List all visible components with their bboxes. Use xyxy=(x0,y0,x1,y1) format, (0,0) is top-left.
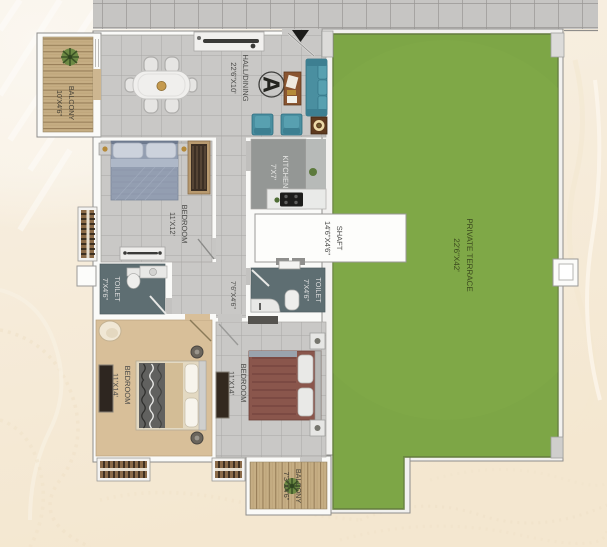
svg-text:10'X4'6": 10'X4'6" xyxy=(55,90,64,117)
svg-text:HALL/DINING: HALL/DINING xyxy=(241,54,250,101)
svg-text:7'6"X4'6": 7'6"X4'6" xyxy=(229,281,236,309)
svg-text:7'3"X4'6": 7'3"X4'6" xyxy=(282,472,291,501)
svg-text:TOILET: TOILET xyxy=(314,277,323,303)
svg-text:BEDROOM: BEDROOM xyxy=(123,366,132,405)
svg-text:22'6"X10': 22'6"X10' xyxy=(229,62,238,94)
svg-text:BALCONY: BALCONY xyxy=(294,469,303,504)
svg-text:BEDROOM: BEDROOM xyxy=(239,364,248,403)
svg-text:7'X7': 7'X7' xyxy=(269,164,278,181)
svg-text:SHAFT: SHAFT xyxy=(335,226,344,251)
svg-text:BALCONY: BALCONY xyxy=(67,86,76,121)
svg-text:7'X4'6": 7'X4'6" xyxy=(101,278,110,301)
svg-text:PRIVATE TERRACE: PRIVATE TERRACE xyxy=(465,218,474,291)
svg-text:22'6"X42': 22'6"X42' xyxy=(452,238,461,272)
svg-text:BEDROOM: BEDROOM xyxy=(180,205,189,244)
svg-text:11'X12': 11'X12' xyxy=(168,212,177,237)
svg-text:KITCHEN: KITCHEN xyxy=(281,156,290,189)
svg-text:TOILET: TOILET xyxy=(113,276,122,302)
svg-text:7'X4'6": 7'X4'6" xyxy=(302,279,311,302)
svg-text:14'6"X4'6": 14'6"X4'6" xyxy=(323,221,332,255)
